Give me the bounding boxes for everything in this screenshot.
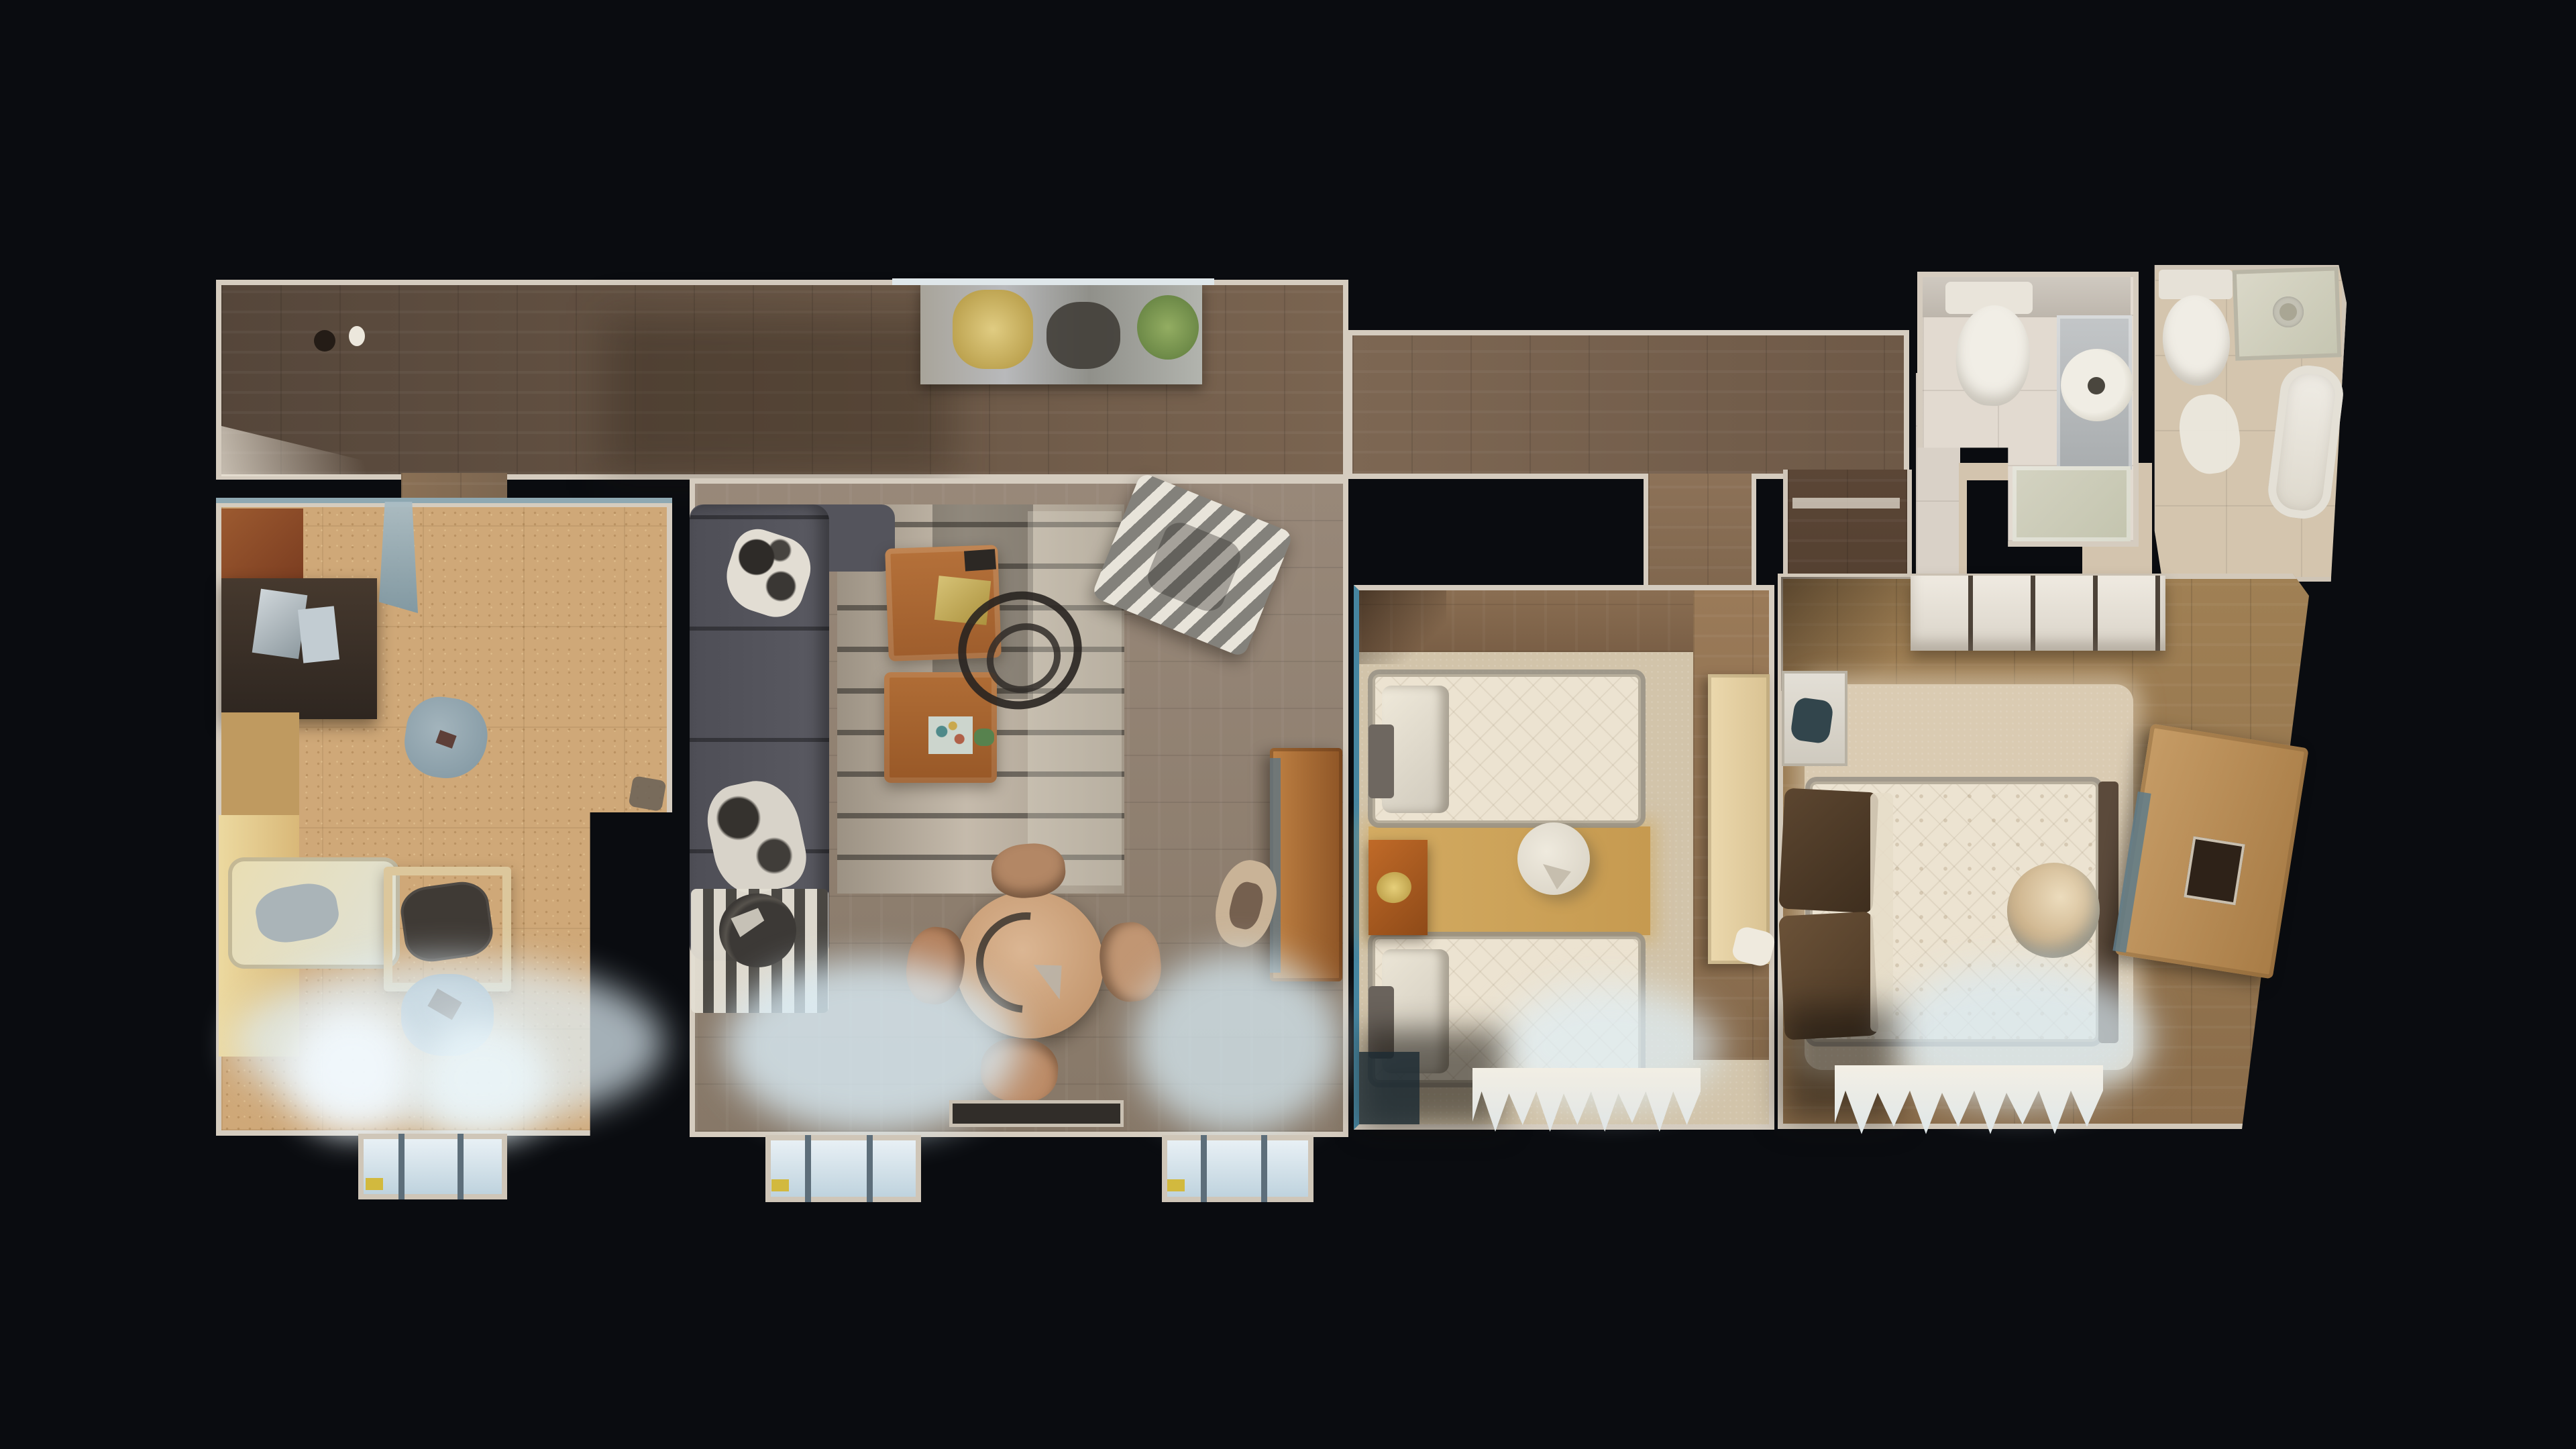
balcony-lr-mullion-2 xyxy=(1261,1135,1267,1202)
hallway-door-dot-dark xyxy=(314,330,335,352)
balcony-lr-tag xyxy=(1167,1179,1185,1191)
double-nightstand-decor xyxy=(1790,696,1834,744)
coffee-table-dark-item xyxy=(964,549,996,571)
balcony-lr-mullion-1 xyxy=(1201,1135,1207,1202)
living-window-glow-right xyxy=(1134,953,1342,1134)
washing-machine-door-dot xyxy=(2088,377,2105,394)
kitchen-door-leaf-artifact xyxy=(379,502,418,613)
balcony-ll-mullion-1 xyxy=(805,1135,811,1202)
balcony-kitchen-mullion-1 xyxy=(398,1134,405,1199)
kitchen-side-item xyxy=(628,775,666,812)
kitchen-wall-top-line xyxy=(216,498,672,503)
balcony-door-living-right xyxy=(1162,1135,1313,1202)
double-bed-pillow-1 xyxy=(1778,788,1878,913)
kitchenette-counter-edge xyxy=(892,278,1214,285)
balcony-ll-mullion-2 xyxy=(867,1135,873,1202)
doorway-to-bedroom-twin[interactable] xyxy=(1644,474,1756,589)
room-hallway-2[interactable] xyxy=(1347,330,1909,479)
sideboard-teal-edge xyxy=(1270,758,1281,973)
kitchenette-dark-item xyxy=(1046,302,1120,369)
striped-pouf xyxy=(719,894,796,967)
hallway-dark-smudge xyxy=(604,315,953,476)
balcony-ll-tag xyxy=(771,1179,789,1191)
corridor-threshold xyxy=(1792,498,1900,508)
dresser-photo-item xyxy=(2184,836,2245,905)
coffee-table-tray xyxy=(928,716,973,754)
kitchen-light-beam xyxy=(288,1006,416,1134)
door-mat xyxy=(953,1104,1120,1124)
kitchen-cabinet-mid xyxy=(221,712,299,818)
balcony-kitchen-tag xyxy=(366,1178,383,1190)
floorplan-canvas[interactable] xyxy=(0,0,2576,1449)
twin-bed-1-headboard xyxy=(1368,724,1394,798)
bedroom-twin-corner-shadow xyxy=(1359,590,1446,664)
ceiling-lamp-artifact xyxy=(1517,822,1590,895)
twin-window-frame-dark xyxy=(1359,1052,1419,1124)
hallway-door-dot-white xyxy=(349,326,365,346)
double-wardrobe xyxy=(1911,576,2165,651)
shower-tray-wc xyxy=(2012,466,2131,541)
kitchen-shelf-red xyxy=(221,508,303,586)
kitchen-picture-frame-2 xyxy=(298,606,339,663)
twin-desk xyxy=(1708,674,1770,964)
balcony-kitchen-mullion-2 xyxy=(458,1134,464,1199)
shower-drain xyxy=(2273,297,2304,327)
sideboard-console xyxy=(1270,748,1342,981)
kitchenette-plant xyxy=(1137,295,1199,360)
double-bed-sheet-edge xyxy=(1870,793,1893,1032)
balcony-door-living-left xyxy=(765,1135,921,1202)
kitchen-light-beam-2 xyxy=(416,1020,550,1140)
green-glass-item xyxy=(974,729,994,746)
kitchenette-gold-item xyxy=(953,290,1033,369)
